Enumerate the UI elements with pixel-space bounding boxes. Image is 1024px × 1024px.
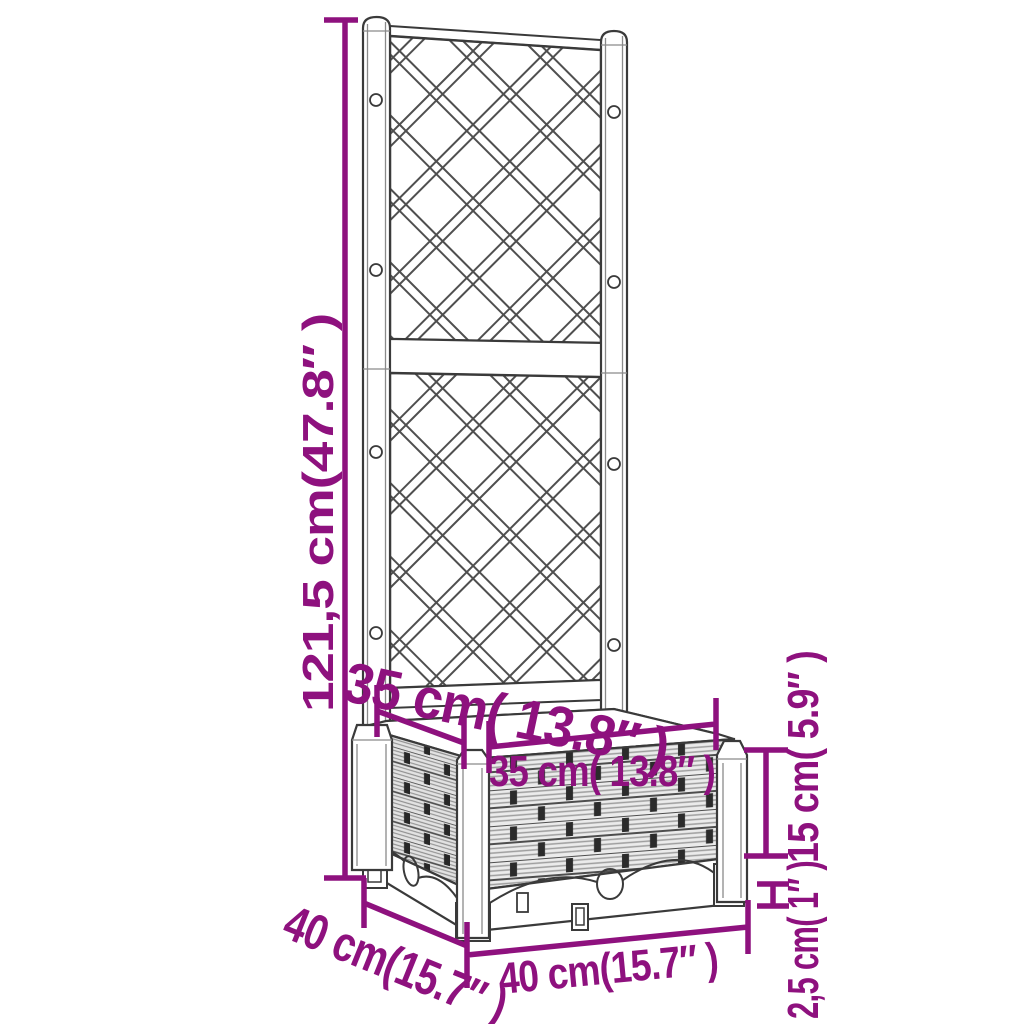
trellis-left-post: [363, 17, 390, 742]
diagram-canvas: 121,5 cm(47.8″ ) 35 cm( 13.8″ ) 35 cm( 1…: [0, 0, 1024, 1024]
corner-post-back-left: [352, 725, 392, 870]
corner-post-front-right: [717, 741, 747, 902]
trellis-lattice-upper: [390, 36, 601, 343]
screw-icon: [370, 264, 382, 276]
corner-post-front-left: [457, 750, 489, 938]
screw-icon: [370, 94, 382, 106]
trellis-lattice-lower: [390, 373, 601, 688]
apron-tab: [517, 893, 528, 912]
dim-total-height-label: 121,5 cm(47.8″ ): [294, 314, 343, 712]
screw-icon: [370, 446, 382, 458]
dim-foot-height-label: 2,5 cm( 1″ ): [779, 861, 828, 1019]
screw-icon: [608, 458, 620, 470]
dim-inner-width-label: 35 cm( 13.8″ ): [489, 747, 715, 796]
trellis: [363, 17, 627, 742]
screw-icon: [608, 276, 620, 288]
dim-box-height-label: 15 cm( 5.9″ ): [779, 651, 828, 863]
dim-outer-width-label: 40 cm(15.7″ ): [496, 934, 720, 1004]
trellis-middle-rail: [390, 339, 601, 377]
screw-icon: [608, 639, 620, 651]
trellis-right-post: [601, 31, 627, 740]
screw-icon: [608, 106, 620, 118]
planter-dimension-diagram: 121,5 cm(47.8″ ) 35 cm( 13.8″ ) 35 cm( 1…: [0, 0, 1024, 1024]
screw-icon: [370, 627, 382, 639]
